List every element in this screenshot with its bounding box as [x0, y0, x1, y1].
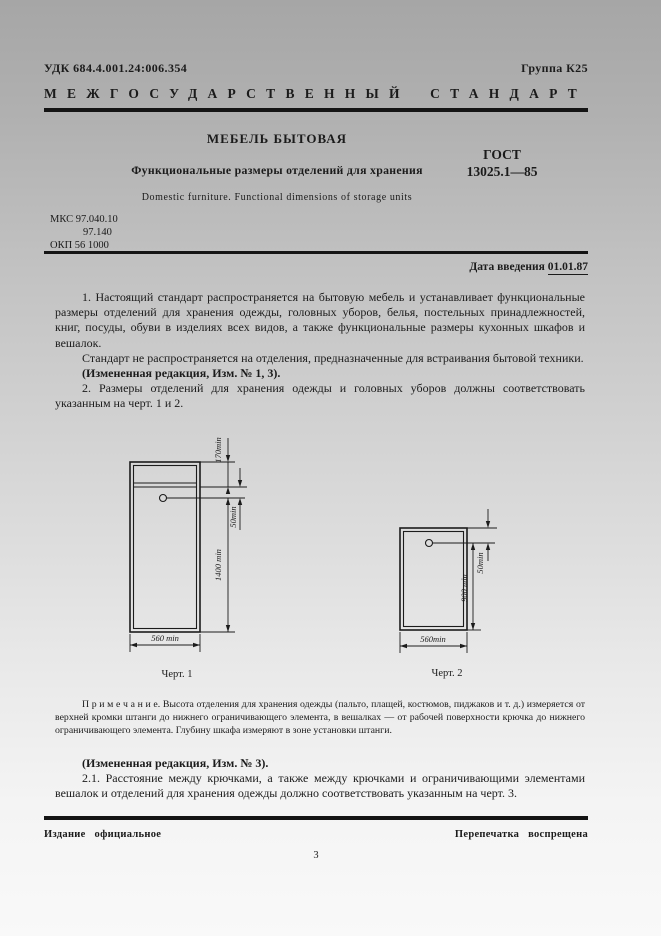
fig1-dim170-arrow-top: [226, 455, 230, 462]
mks-code-line1: МКС 97.040.10: [50, 213, 118, 226]
date-value: 01.01.87: [548, 261, 588, 275]
amendment-note-2: (Измененная редакция, Изм. № 3).: [55, 756, 585, 771]
fig1-dim170-arrow-bottom: [226, 487, 230, 494]
group-code: Группа К25: [521, 61, 588, 76]
fig1-dim1400-arrow-top: [226, 498, 230, 505]
fig1-dim-top-label: 170min: [213, 437, 223, 463]
fig2-dim-height-label: 900 min: [459, 574, 469, 602]
figure-1-drawing: 170min 50min 1400 min 560 min Черт. 1: [115, 430, 265, 690]
paragraph-exclusion: Стандарт не распространяется на отделени…: [55, 351, 585, 366]
fig1-dim560-arrow-right: [193, 643, 200, 647]
figure-2-drawing: 50min 900 min 560min Черт. 2: [385, 503, 530, 685]
fig1-dim-rod-label: 50min: [228, 506, 238, 527]
fig1-rod-circle: [160, 495, 167, 502]
fig2-hook-circle: [426, 540, 433, 547]
fig1-cabinet-inner: [134, 466, 197, 629]
standard-kind-heading: МЕЖГОСУДАРСТВЕННЫЙ СТАНДАРТ: [44, 86, 588, 102]
date-label: Дата введения: [469, 261, 545, 273]
mks-code-line2: 97.140: [50, 226, 118, 239]
top-header-row: УДК 684.4.001.24:006.354 Группа К25: [44, 61, 588, 76]
title-english: Domestic furniture. Functional dimension…: [44, 192, 510, 203]
classification-codes: МКС 97.040.10 97.140 ОКП 56 1000: [50, 213, 118, 252]
body-section-2: (Измененная редакция, Изм. № 3). 2.1. Ра…: [55, 756, 585, 802]
fig1-dim-height-label: 1400 min: [213, 549, 223, 581]
document-title: МЕБЕЛЬ БЫТОВАЯ: [44, 131, 510, 147]
fig1-dim50-arrow-top: [238, 480, 242, 487]
fig2-dim560-arrow-right: [460, 644, 467, 648]
fig2-dim560-arrow-left: [400, 644, 407, 648]
footer-row: Издание официальное Перепечатка воспреще…: [44, 829, 588, 840]
fig2-dim900-arrow-top: [471, 543, 475, 550]
divider-top: [44, 108, 588, 112]
document-page: УДК 684.4.001.24:006.354 Группа К25 МЕЖГ…: [0, 0, 661, 936]
amendment-note-1: (Измененная редакция, Изм. № 1, 3).: [55, 366, 585, 381]
fig1-dim1400-arrow-bottom: [226, 625, 230, 632]
udk-code: УДК 684.4.001.24:006.354: [44, 61, 187, 76]
divider-footer: [44, 816, 588, 820]
gost-label: ГОСТ: [440, 146, 564, 163]
fig1-dim50-arrow-bottom: [238, 498, 242, 505]
gost-designation: ГОСТ 13025.1—85: [440, 146, 564, 180]
fig2-dim50-arrow-top: [486, 521, 490, 528]
fig2-dim900-arrow-bottom: [471, 623, 475, 630]
paragraph-scope: 1. Настоящий стандарт распространяется н…: [55, 290, 585, 351]
fig1-dim-width-label: 560 min: [151, 633, 179, 643]
divider-codes: [44, 251, 588, 254]
figure-1-caption: Черт. 1: [162, 669, 193, 680]
page-number: 3: [44, 850, 588, 861]
footer-reprint-notice: Перепечатка воспрещена: [455, 829, 588, 840]
fig1-dim560-arrow-left: [130, 643, 137, 647]
paragraph-clause-2: 2. Размеры отделений для хранения одежды…: [55, 381, 585, 411]
fig2-dim-hook-label: 50min: [475, 552, 485, 573]
introduction-date-line: Дата введения 01.01.87: [44, 261, 588, 273]
figure-2-caption: Черт. 2: [432, 668, 463, 679]
fig2-dim-width-label: 560min: [420, 634, 446, 644]
note-paragraph: П р и м е ч а н и е. Высота отделения дл…: [55, 698, 585, 738]
paragraph-clause-2-1: 2.1. Расстояние между крючками, а также …: [55, 771, 585, 801]
footer-official-edition: Издание официальное: [44, 829, 161, 840]
fig2-cabinet-inner: [404, 532, 464, 627]
fig2-dim50-arrow-bottom: [486, 543, 490, 550]
body-section-1: 1. Настоящий стандарт распространяется н…: [55, 290, 585, 412]
gost-number: 13025.1—85: [440, 163, 564, 180]
